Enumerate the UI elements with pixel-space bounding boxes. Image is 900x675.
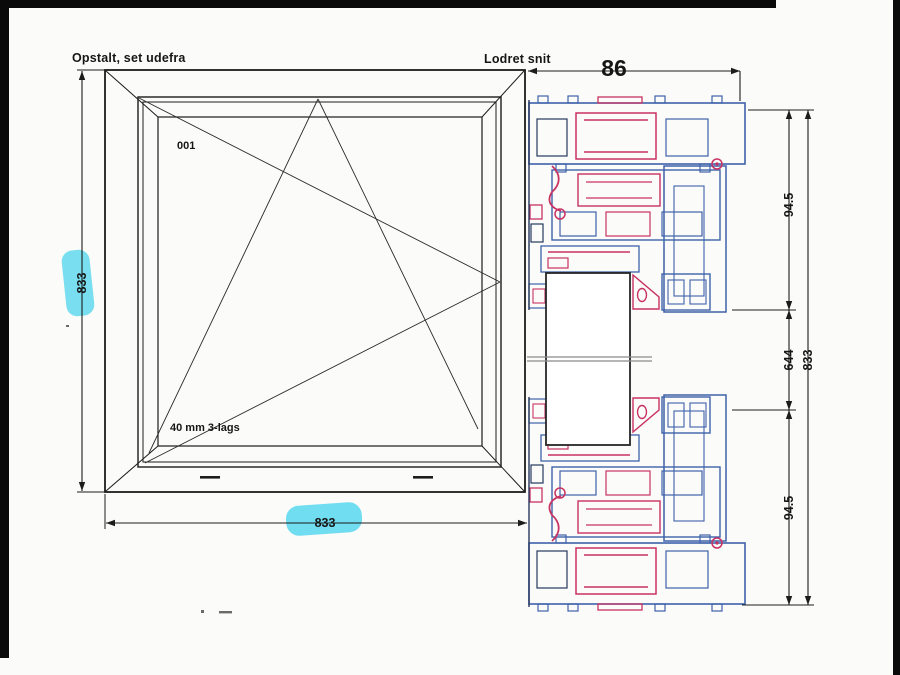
width-dimension-value: 833 [315,516,336,530]
width-dimension: 833 [105,494,527,537]
frame-mark-right [413,476,433,479]
height-dimension: 833 [61,70,110,492]
scanned-drawing-page: Opstalt, set udefra [0,0,900,675]
depth-dimension-value: 86 [601,55,627,81]
section-dimensions: 94.5 644 94.5 833 [732,110,815,605]
elevation-frame [105,70,525,492]
section-view: Lodret snit 86 [484,52,815,611]
elevation-title: Opstalt, set udefra [72,51,186,65]
technical-drawing: Opstalt, set udefra [0,0,900,675]
section-title: Lodret snit [484,52,551,66]
total-height-dimension-value: 833 [801,350,815,371]
opening-symbols [139,98,500,463]
top-profile-dimension-value: 94.5 [782,193,796,217]
item-number-label: 001 [177,140,195,152]
frame-mark-left [200,476,220,479]
elevation-view: Opstalt, set udefra [61,51,527,537]
height-dimension-value: 833 [75,273,89,294]
depth-dimension: 86 [528,55,740,101]
glass-dimension-value: 644 [782,350,796,371]
bottom-profile-dimension-value: 94.5 [782,496,796,520]
scan-specks [66,325,232,613]
glazing-label: 40 mm 3-lags [170,422,240,434]
